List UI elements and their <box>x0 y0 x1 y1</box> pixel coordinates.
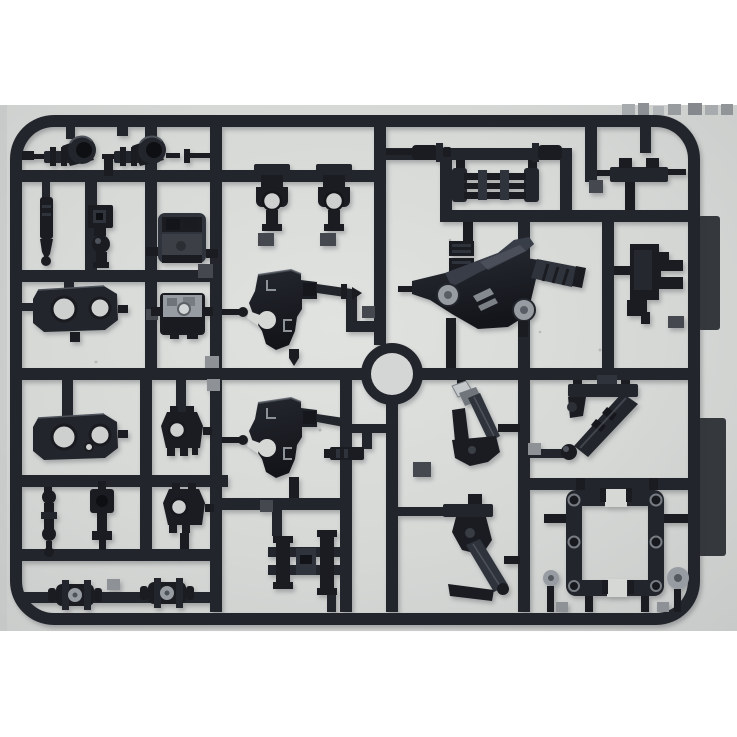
notch-hook <box>600 488 606 502</box>
top-tab <box>170 406 178 413</box>
hat-flange <box>254 164 290 175</box>
runner-segment <box>62 380 73 418</box>
runner-segment <box>386 403 398 612</box>
bottom-notch <box>607 579 627 597</box>
ring-hole <box>146 142 162 158</box>
left-stub <box>544 514 566 523</box>
ball-tip <box>41 256 51 266</box>
plate-hole <box>90 425 110 445</box>
ring-hole <box>76 142 92 158</box>
runner-segment <box>210 127 222 612</box>
top-notch <box>605 489 627 507</box>
runner-segment <box>346 321 386 332</box>
knot-detail <box>468 446 476 454</box>
spool <box>320 533 334 590</box>
dust-speck <box>319 429 322 432</box>
face-circle <box>178 303 190 315</box>
part-peg-right <box>532 143 562 162</box>
ball <box>42 527 56 541</box>
plate-hole <box>90 298 110 318</box>
bottom-stub <box>289 477 299 498</box>
bracket-shade <box>634 250 652 290</box>
foot <box>170 333 179 339</box>
block-hole <box>171 499 187 515</box>
runner-segment <box>340 380 352 612</box>
collar <box>184 149 190 163</box>
peg-body <box>538 145 562 160</box>
face-detail <box>167 298 177 306</box>
gate <box>118 430 128 438</box>
gate <box>203 427 212 435</box>
ball <box>92 235 110 253</box>
gate-pad <box>668 316 684 328</box>
dust-speck <box>539 331 542 334</box>
blade-body <box>40 197 53 239</box>
stem <box>266 210 278 224</box>
collar <box>62 580 69 610</box>
vent-rib <box>452 250 471 253</box>
gate-post <box>104 158 113 176</box>
gate-pad <box>362 306 375 318</box>
gate <box>151 307 160 316</box>
gate-pad <box>413 462 431 477</box>
vent-block <box>449 241 474 256</box>
right-stub <box>664 514 688 523</box>
bottom-stub <box>446 318 456 368</box>
end-plate <box>524 168 539 202</box>
spool-cap <box>273 536 293 543</box>
thin-pin <box>386 149 414 155</box>
ball-tip <box>44 547 54 557</box>
hat-flange <box>316 164 352 175</box>
thin-pin <box>668 169 686 175</box>
box-lower <box>163 317 202 333</box>
strut-bar <box>568 384 638 397</box>
bracket-nub <box>619 158 632 168</box>
gate-pad <box>198 264 213 278</box>
ridge <box>336 449 340 458</box>
knot-detail <box>465 528 475 538</box>
compression-artifact <box>688 103 702 115</box>
collar <box>50 147 56 166</box>
box-lip <box>162 255 202 263</box>
boss-center <box>165 591 170 596</box>
notch-hook <box>626 488 632 502</box>
runner-segment <box>222 498 352 510</box>
foot <box>92 531 112 540</box>
bottom-stub <box>641 596 649 612</box>
pin <box>98 481 106 489</box>
compression-artifact <box>721 104 733 115</box>
runner-segment <box>640 127 651 153</box>
thin-pin <box>190 153 210 158</box>
peg-center <box>548 575 554 581</box>
spool <box>276 539 290 586</box>
screw-boss <box>569 581 579 591</box>
top-box <box>597 375 617 385</box>
compression-artifact <box>668 104 681 115</box>
pin <box>99 540 106 550</box>
stem <box>328 210 340 224</box>
bottom-stub <box>180 533 189 549</box>
spool <box>478 170 487 200</box>
bottom-stub <box>625 182 635 210</box>
bottom-stub <box>585 596 593 612</box>
socket-recess <box>303 411 316 424</box>
foot <box>93 262 109 268</box>
pin-knob <box>238 435 248 445</box>
foot <box>182 525 190 533</box>
top-pin <box>463 222 473 244</box>
thin-pin <box>32 154 46 159</box>
gate <box>206 249 218 258</box>
vent-rib <box>452 261 471 264</box>
gate-pad <box>528 443 541 455</box>
rail-bar <box>464 173 526 180</box>
runner-segment <box>374 127 386 345</box>
foot <box>324 224 344 231</box>
screw-boss <box>569 495 580 506</box>
top-tab <box>172 483 180 490</box>
runner-segment <box>327 595 336 612</box>
top-bar <box>443 504 493 517</box>
bracket-hole <box>567 402 577 412</box>
screw-boss <box>651 581 661 591</box>
gate-pad <box>207 379 220 391</box>
thin-pin <box>166 153 180 158</box>
peg-body <box>412 145 438 160</box>
runner-segment <box>42 182 50 198</box>
top-bump <box>468 494 482 504</box>
spool-cap <box>273 582 293 589</box>
left-stub <box>614 266 630 275</box>
box-opening <box>184 218 198 229</box>
photo-stage <box>0 0 737 737</box>
runner-segment <box>602 222 614 368</box>
neck <box>261 175 283 187</box>
compression-artifact <box>653 106 664 115</box>
rail-bar <box>464 183 526 189</box>
socket-opening <box>96 213 103 220</box>
shell-notch <box>258 311 276 329</box>
part-detail-box-2 <box>151 293 213 339</box>
runner-segment <box>560 148 572 210</box>
collar <box>154 578 161 608</box>
gate <box>146 247 158 256</box>
foot <box>262 224 282 231</box>
foot <box>180 448 188 456</box>
runner-segment <box>272 510 282 536</box>
right-stub <box>504 556 520 564</box>
peg-center <box>674 574 682 582</box>
bottom-stub <box>641 312 650 324</box>
stem <box>94 228 106 236</box>
side-tab-lower <box>698 418 726 556</box>
bracket-bar <box>610 167 668 182</box>
runner-segment <box>352 424 396 433</box>
socket-recess <box>303 283 316 296</box>
center-slot <box>300 555 312 564</box>
gate <box>205 307 213 316</box>
plate-hole-small <box>85 443 93 451</box>
runner-segment <box>422 368 690 380</box>
ball-glare <box>563 446 569 452</box>
top-tab <box>186 406 194 413</box>
box-dimple <box>176 241 186 251</box>
screw-boss <box>569 537 580 548</box>
gate-pad <box>107 579 120 590</box>
runner-segment <box>22 475 228 487</box>
foot-stub <box>518 321 528 337</box>
ball-glare <box>95 238 101 244</box>
ball-end <box>561 444 577 460</box>
neck <box>323 175 345 187</box>
notch-hook <box>628 580 634 594</box>
mid-collar <box>41 512 57 519</box>
block-hole <box>96 495 108 507</box>
runner-segment <box>440 210 690 222</box>
stem <box>97 513 107 533</box>
ridge <box>344 449 348 458</box>
plate-hole <box>52 425 76 449</box>
spool <box>500 170 509 200</box>
bracket-nub <box>646 158 659 168</box>
blade-notch <box>42 205 51 208</box>
block-hole <box>169 422 185 438</box>
runner-segment <box>22 270 222 282</box>
gate-pad <box>589 180 603 193</box>
spool-cap <box>317 530 337 537</box>
collar <box>176 578 183 608</box>
rail-bar <box>464 192 526 199</box>
collar <box>120 147 126 166</box>
foot <box>187 333 198 339</box>
shell-notch <box>258 439 276 457</box>
gate-pad <box>320 233 336 246</box>
side-tab-upper <box>698 216 720 330</box>
runner-segment <box>362 433 372 449</box>
foot <box>192 448 198 455</box>
runner-segment <box>66 127 75 139</box>
top-stub <box>649 478 658 490</box>
end-cap <box>48 588 56 602</box>
gate-pad <box>258 233 274 246</box>
rod-tip <box>497 583 509 595</box>
center-ring <box>361 343 423 405</box>
gate-pad <box>657 602 669 612</box>
collar <box>84 580 91 610</box>
gate-pad <box>556 602 568 612</box>
box-opening <box>166 219 180 230</box>
boss-center <box>444 291 452 299</box>
runner-segment <box>117 127 128 136</box>
runner-segment <box>440 160 452 210</box>
right-stub <box>498 424 520 432</box>
compression-artifact <box>705 105 718 115</box>
peg-stem <box>674 589 681 612</box>
gate-pad <box>205 356 219 368</box>
peg-stem <box>547 586 554 612</box>
top-tab <box>188 483 196 490</box>
surface-edge-shade <box>0 105 7 631</box>
foot <box>169 525 177 533</box>
top-stub <box>576 478 585 490</box>
dust-speck <box>95 361 98 364</box>
runner-segment <box>585 127 597 182</box>
runner-segment <box>398 507 444 516</box>
left-gate <box>398 286 414 292</box>
bottom-stub <box>289 349 299 358</box>
end-cap <box>186 586 194 600</box>
foot <box>167 448 175 456</box>
gate-pad <box>260 500 273 512</box>
rod-collar <box>341 284 347 299</box>
notch-hook <box>602 580 608 594</box>
plate-hole <box>52 297 76 321</box>
dust-speck <box>449 239 452 242</box>
peg-collar <box>436 143 443 162</box>
runner-segment <box>22 368 362 380</box>
thin-pin <box>597 170 610 176</box>
pin-knob <box>238 307 248 317</box>
end-cap <box>140 586 148 600</box>
gate <box>118 305 128 313</box>
peg-collar <box>532 143 539 162</box>
boss-center <box>73 593 78 598</box>
runner-segment <box>140 380 152 549</box>
screw-boss <box>651 495 662 506</box>
blade-notch <box>42 213 51 216</box>
boss-center <box>520 306 528 314</box>
vent-rib <box>452 244 471 247</box>
spool-cap <box>317 588 337 595</box>
compression-artifact <box>638 103 649 115</box>
gate <box>70 332 80 342</box>
runner-segment <box>64 276 74 288</box>
screw-boss <box>651 537 662 548</box>
dust-speck <box>599 349 602 352</box>
gate <box>205 504 214 512</box>
end-cap <box>94 588 102 602</box>
center-ring-hole <box>371 353 413 395</box>
ball <box>42 490 56 504</box>
peg-tip <box>443 147 451 157</box>
sprue-photo <box>0 0 737 737</box>
compression-artifact <box>622 104 635 115</box>
